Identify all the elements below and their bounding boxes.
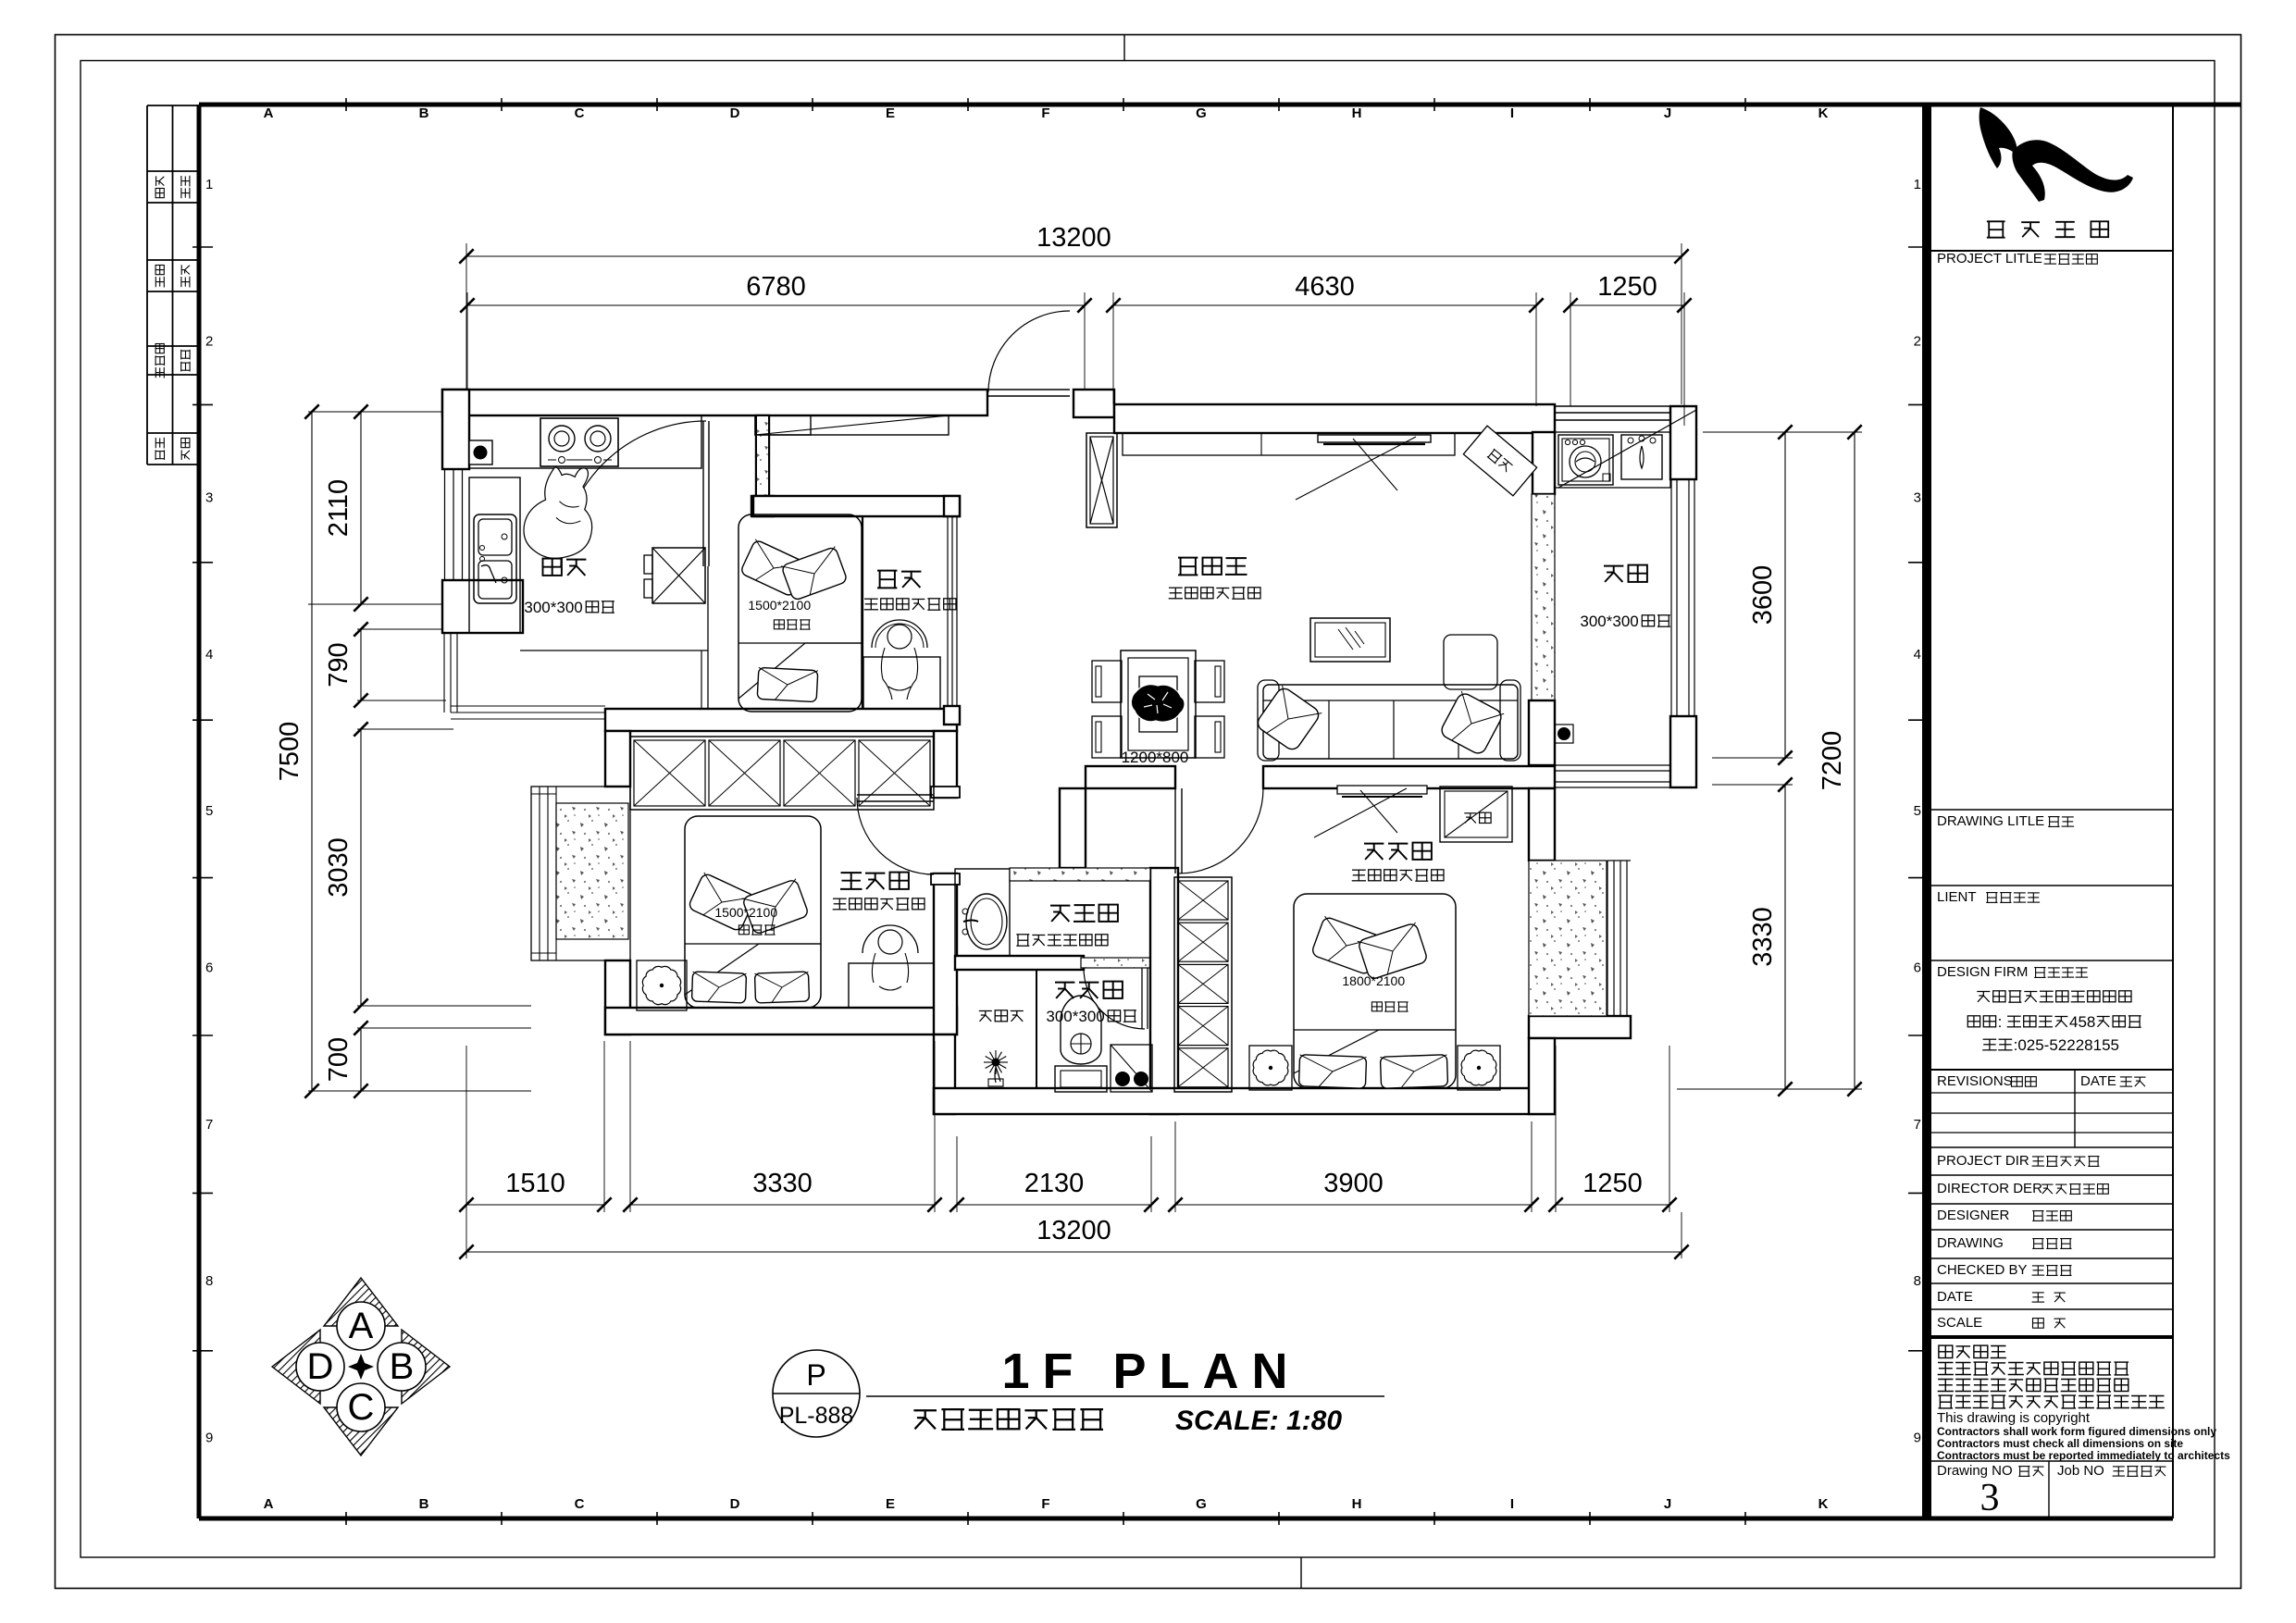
svg-text:1510: 1510 (505, 1169, 565, 1198)
svg-text:P: P (806, 1358, 825, 1392)
svg-text:D: D (730, 1496, 740, 1512)
svg-text:6780: 6780 (746, 272, 806, 302)
svg-text:DATE: DATE (1937, 1289, 1973, 1305)
svg-text::025-52228155: :025-52228155 (2014, 1036, 2119, 1054)
svg-text:G: G (1196, 1496, 1207, 1512)
svg-text:300*300: 300*300 (524, 599, 582, 616)
svg-text:A: A (264, 1496, 274, 1512)
svg-text:3: 3 (1980, 1477, 2000, 1519)
svg-text:9: 9 (205, 1430, 213, 1445)
svg-text:3600: 3600 (1748, 565, 1778, 626)
svg-text:E: E (886, 1496, 895, 1512)
svg-text:1: 1 (1914, 177, 1921, 192)
svg-text:1500*2100: 1500*2100 (748, 598, 811, 613)
svg-text:B: B (390, 1346, 415, 1387)
svg-text:CHECKED BY: CHECKED BY (1937, 1262, 2028, 1278)
svg-text:B: B (419, 105, 429, 121)
svg-text:300*300: 300*300 (1046, 1008, 1104, 1025)
svg-text:8: 8 (1914, 1273, 1921, 1289)
svg-text:C: C (348, 1387, 375, 1428)
svg-text:I: I (1510, 1496, 1514, 1512)
svg-text:1800*2100: 1800*2100 (1342, 973, 1405, 988)
svg-text:G: G (1196, 105, 1207, 121)
svg-text::: : (1998, 1013, 2003, 1031)
svg-text:SCALE: SCALE (1937, 1315, 1982, 1331)
svg-text:1500*2100: 1500*2100 (714, 905, 777, 920)
svg-text:1F PLAN: 1F PLAN (1001, 1344, 1300, 1399)
svg-text:H: H (1352, 105, 1362, 121)
svg-text:2: 2 (1914, 333, 1921, 349)
svg-text:7500: 7500 (275, 722, 304, 782)
svg-text:DATE: DATE (2080, 1073, 2116, 1089)
svg-text:A: A (264, 105, 274, 121)
svg-text:8: 8 (205, 1273, 213, 1289)
svg-text:9: 9 (1914, 1430, 1921, 1445)
svg-text:4: 4 (205, 647, 213, 663)
svg-text:7: 7 (205, 1117, 213, 1133)
svg-text:700: 700 (324, 1037, 354, 1082)
svg-text:DESIGN FIRM: DESIGN FIRM (1937, 964, 2028, 980)
svg-text:790: 790 (324, 642, 354, 687)
svg-text:1250: 1250 (1597, 272, 1657, 302)
svg-text:6: 6 (1914, 960, 1921, 976)
svg-text:K: K (1818, 105, 1829, 121)
svg-text:DIRECTOR DER: DIRECTOR DER (1937, 1181, 2042, 1196)
svg-text:4: 4 (1914, 647, 1921, 663)
svg-text:H: H (1352, 1496, 1362, 1512)
svg-text:5: 5 (205, 803, 213, 819)
svg-text:LIENT: LIENT (1937, 889, 1977, 905)
svg-text:DRAWING: DRAWING (1937, 1235, 2004, 1251)
svg-text:PL-888: PL-888 (779, 1403, 854, 1429)
svg-text:Contractors must be reported i: Contractors must be reported immediately… (1937, 1449, 2230, 1462)
svg-text:F: F (1041, 1496, 1049, 1512)
svg-text:2110: 2110 (324, 479, 354, 537)
svg-text:PROJECT LITLE: PROJECT LITLE (1937, 251, 2042, 266)
svg-text:3030: 3030 (324, 837, 354, 898)
svg-text:Contractors must check all dim: Contractors must check all dimensions on… (1937, 1437, 2183, 1450)
svg-text:458: 458 (2069, 1013, 2095, 1031)
svg-text:13200: 13200 (1036, 223, 1111, 253)
svg-text:7: 7 (1914, 1117, 1921, 1133)
svg-text:3330: 3330 (752, 1169, 813, 1198)
svg-text:REVISIONS: REVISIONS (1937, 1073, 2013, 1089)
svg-text:B: B (419, 1496, 429, 1512)
svg-text:J: J (1664, 105, 1671, 121)
svg-text:5: 5 (1914, 803, 1921, 819)
svg-text:7200: 7200 (1818, 731, 1847, 791)
svg-text:13200: 13200 (1036, 1216, 1111, 1245)
svg-text:D: D (307, 1346, 334, 1387)
svg-text:1200*800: 1200*800 (1122, 749, 1189, 766)
svg-text:E: E (886, 105, 895, 121)
svg-text:3: 3 (1914, 490, 1921, 506)
svg-text:D: D (730, 105, 740, 121)
svg-text:6: 6 (205, 960, 213, 976)
svg-text:4630: 4630 (1295, 272, 1355, 302)
svg-text:C: C (575, 1496, 585, 1512)
svg-text:DESIGNER: DESIGNER (1937, 1208, 2010, 1223)
svg-text:This drawing is copyright: This drawing is copyright (1937, 1410, 2091, 1426)
svg-text:F: F (1041, 105, 1049, 121)
svg-text:Contractors shall work form fi: Contractors shall work form figured dime… (1937, 1425, 2216, 1438)
svg-text:C: C (575, 105, 585, 121)
svg-text:3900: 3900 (1323, 1169, 1384, 1198)
svg-text:300*300: 300*300 (1580, 613, 1638, 630)
svg-text:2130: 2130 (1024, 1169, 1085, 1198)
svg-text:K: K (1818, 1496, 1829, 1512)
svg-text:PROJECT DIR: PROJECT DIR (1937, 1153, 2029, 1169)
svg-text:DRAWING LITLE: DRAWING LITLE (1937, 813, 2044, 829)
svg-text:2: 2 (205, 333, 213, 349)
svg-text:A: A (349, 1306, 374, 1346)
svg-text:1250: 1250 (1582, 1169, 1643, 1198)
svg-text:3: 3 (205, 490, 213, 506)
svg-text:1: 1 (205, 177, 213, 192)
svg-text:Drawing NO: Drawing NO (1937, 1463, 2013, 1479)
svg-text:SCALE: 1:80: SCALE: 1:80 (1175, 1406, 1342, 1436)
svg-text:3330: 3330 (1748, 907, 1778, 967)
svg-text:Job NO: Job NO (2057, 1463, 2104, 1479)
svg-text:I: I (1510, 105, 1514, 121)
svg-text:J: J (1664, 1496, 1671, 1512)
